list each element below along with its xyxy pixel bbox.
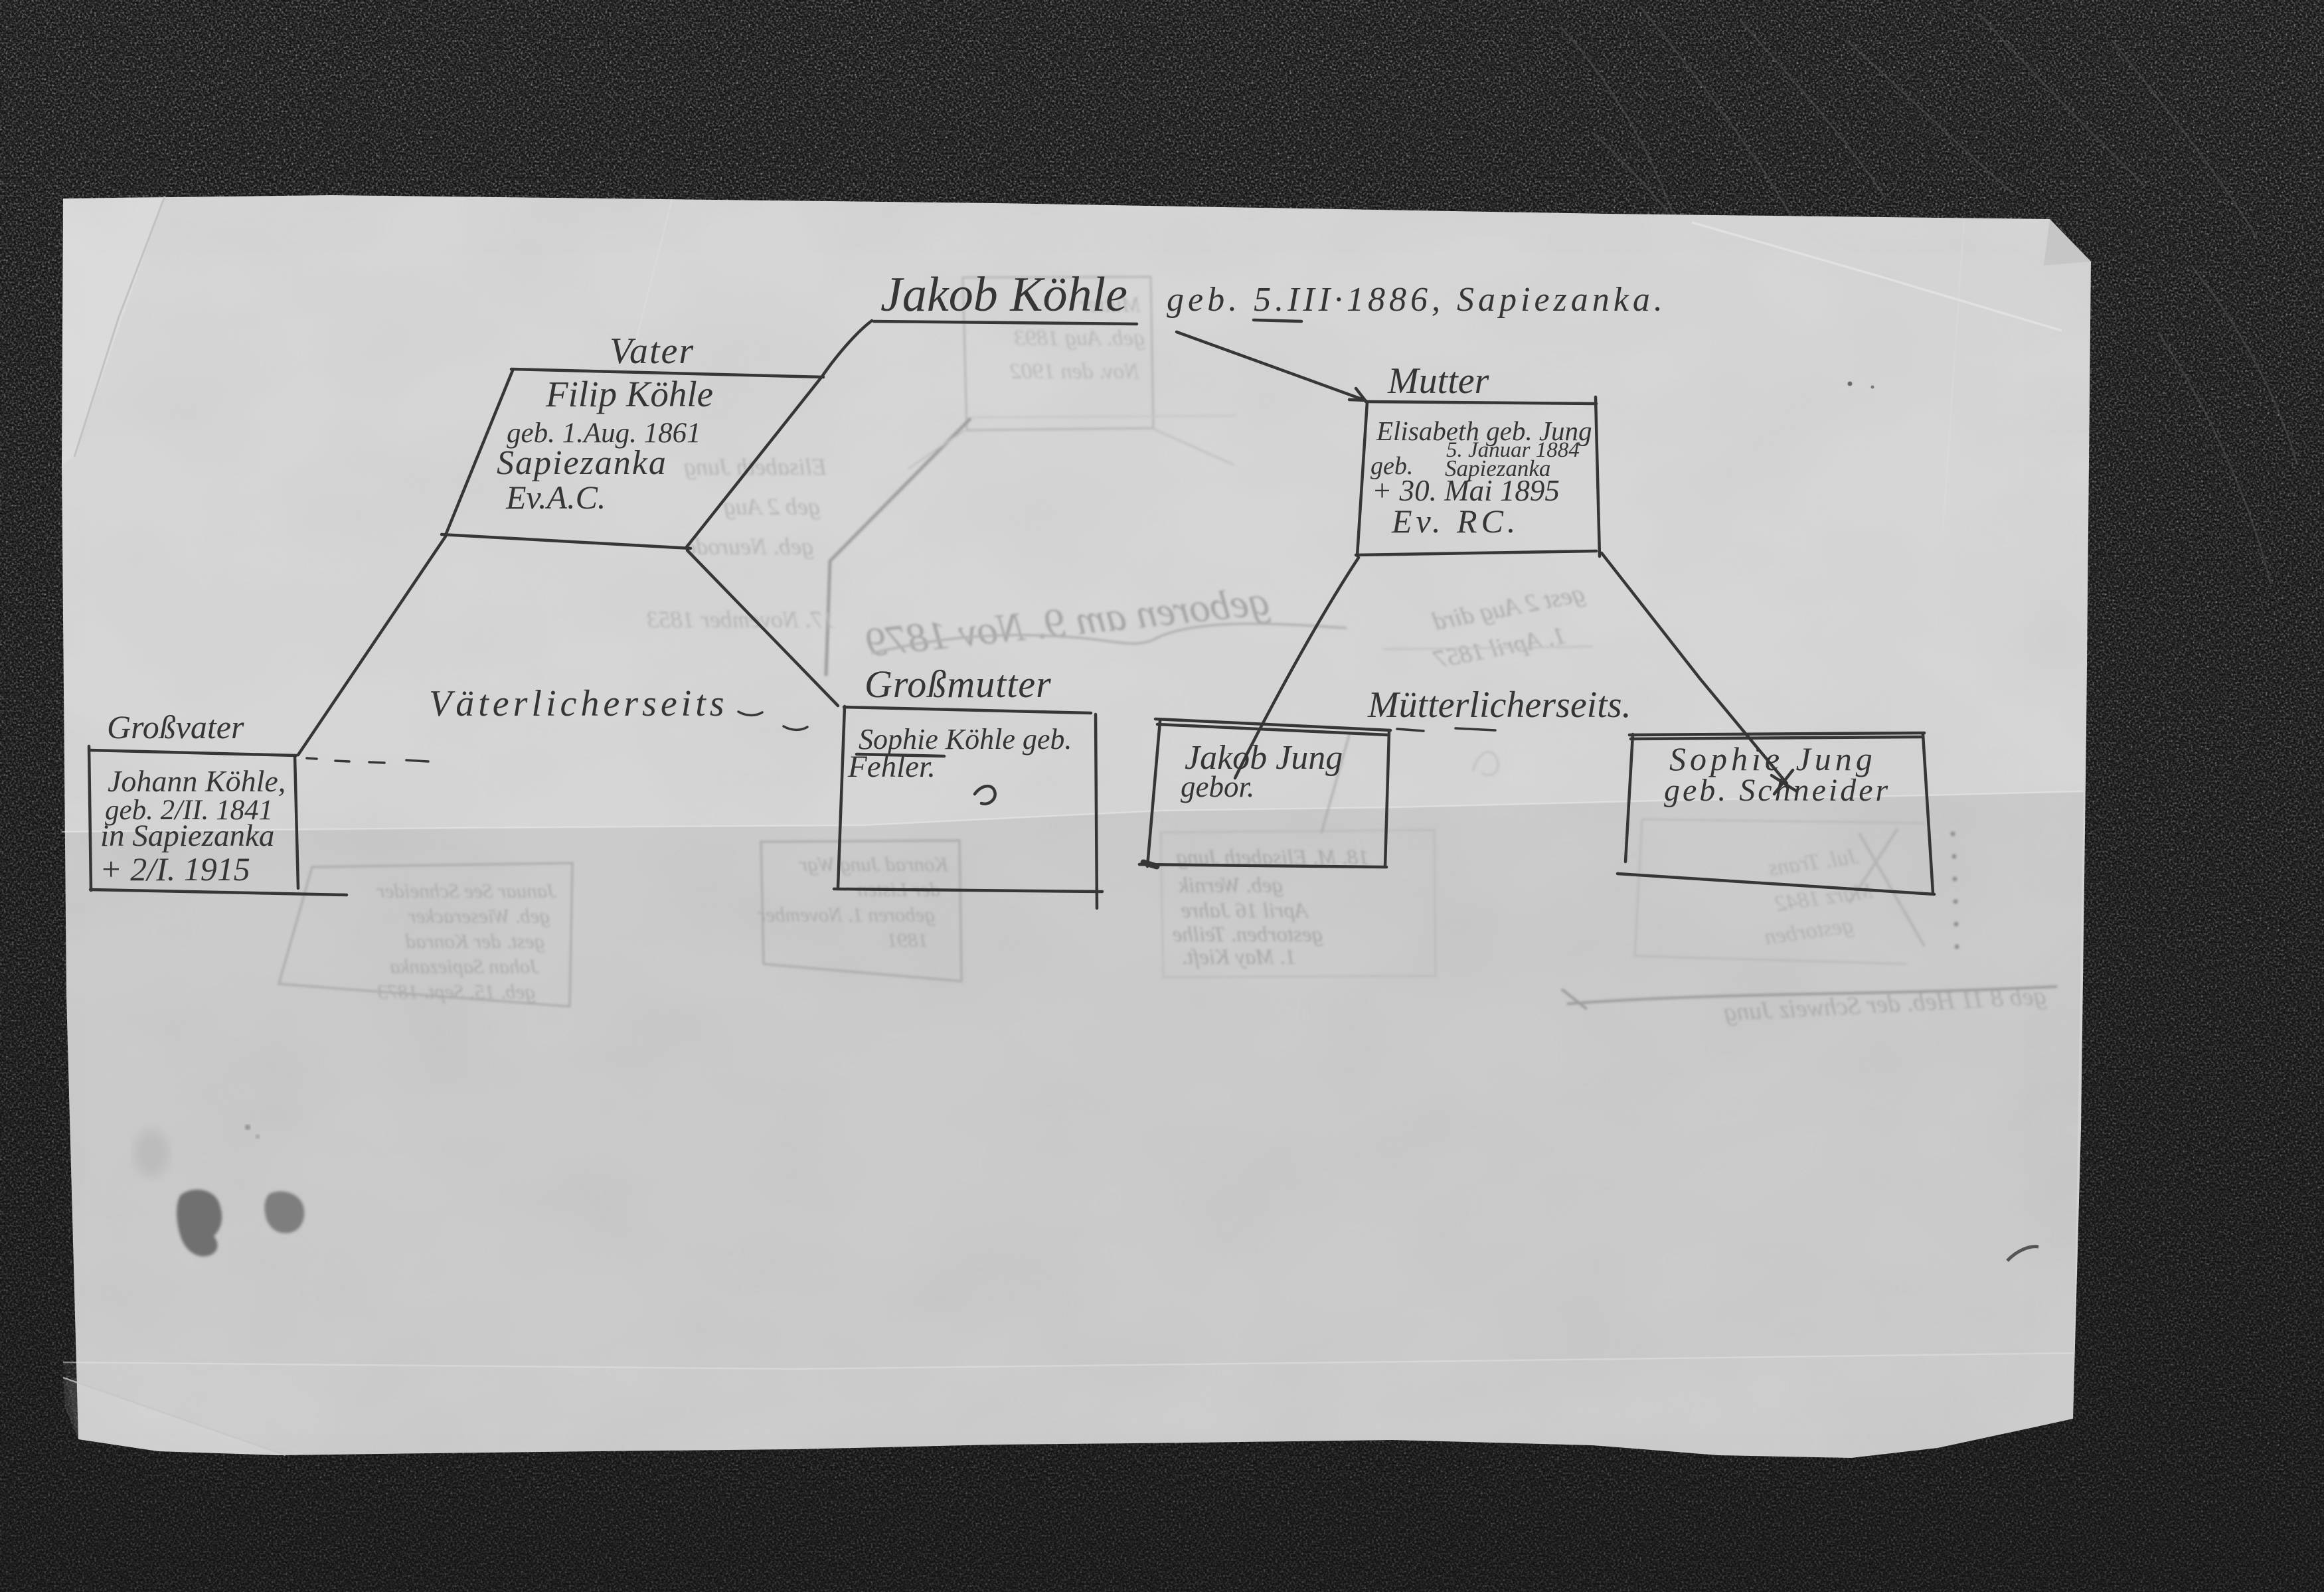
svg-text:geb. 15. Sept. 1873: geb. 15. Sept. 1873 xyxy=(377,980,535,1003)
svg-text:in Sapiezanka: in Sapiezanka xyxy=(100,819,274,853)
svg-text:Mütterlicherseits.: Mütterlicherseits. xyxy=(1367,684,1631,726)
svg-text:Konrad Jung Wgr: Konrad Jung Wgr xyxy=(799,852,949,876)
svg-text:Jakob Köhle: Jakob Köhle xyxy=(880,268,1127,322)
svg-text:geb. Schneider: geb. Schneider xyxy=(1664,773,1890,808)
svg-text:Elisabeth Jung: Elisabeth Jung xyxy=(684,453,827,480)
svg-text:17. November 1853: 17. November 1853 xyxy=(647,606,835,633)
svg-text:Nov. den 1902: Nov. den 1902 xyxy=(1010,359,1140,384)
svg-text:April 16 Jahre: April 16 Jahre xyxy=(1181,899,1309,923)
svg-text:Großvater: Großvater xyxy=(107,708,244,746)
svg-text:geb. 5.III·1886, Sapiezanka.: geb. 5.III·1886, Sapiezanka. xyxy=(1167,281,1667,319)
svg-text:Johann Köhle,: Johann Köhle, xyxy=(108,764,286,798)
svg-text:Ev. RC.: Ev. RC. xyxy=(1391,503,1519,540)
svg-text:Väterlicherseits: Väterlicherseits xyxy=(429,683,728,724)
svg-text:Januar See Schneider: Januar See Schneider xyxy=(376,879,556,902)
svg-text:Großmutter: Großmutter xyxy=(865,663,1052,706)
svg-text:geboren 1. November: geboren 1. November xyxy=(757,903,935,926)
svg-text:Ev.A.C.: Ev.A.C. xyxy=(505,479,606,516)
svg-text:gebor.: gebor. xyxy=(1181,770,1254,803)
svg-text:geb. Wieseracker: geb. Wieseracker xyxy=(408,904,550,927)
svg-text:Filip Köhle: Filip Köhle xyxy=(545,374,713,414)
svg-text:geb. Aug 1893: geb. Aug 1893 xyxy=(1014,326,1145,351)
svg-text:gest. der Konrad: gest. der Konrad xyxy=(405,929,544,953)
svg-text:geb. Wernik: geb. Wernik xyxy=(1178,874,1283,898)
svg-text:+ 2/I. 1915: + 2/I. 1915 xyxy=(100,850,250,888)
svg-text:Sapiezanka: Sapiezanka xyxy=(497,444,667,482)
svg-text:Vater: Vater xyxy=(610,331,695,372)
svg-text:gestorben. Teilhe: gestorben. Teilhe xyxy=(1173,923,1323,947)
svg-text:Mutter: Mutter xyxy=(1387,360,1489,402)
svg-text:Johan Sapiezanka: Johan Sapiezanka xyxy=(390,955,539,978)
svg-text:geb 2 Aug: geb 2 Aug xyxy=(724,493,820,520)
svg-text:geb. Neurode: geb. Neurode xyxy=(685,533,813,560)
svg-text:Sophie Jung: Sophie Jung xyxy=(1669,740,1876,777)
svg-text:1. May Kieft.: 1. May Kieft. xyxy=(1182,945,1296,969)
svg-text:1891: 1891 xyxy=(887,928,928,951)
svg-text:Fehler.: Fehler. xyxy=(847,750,936,784)
